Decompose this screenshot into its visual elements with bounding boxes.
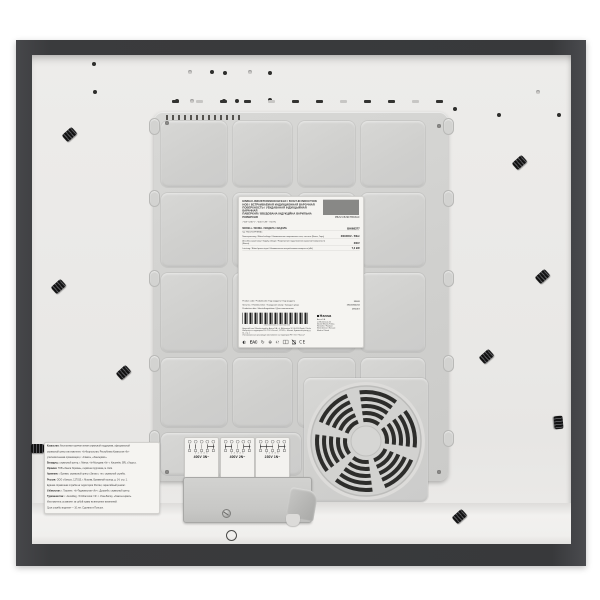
terminal-circle <box>212 440 215 443</box>
spec-label: Anschlussspannung / Supply voltage / Нап… <box>242 240 325 245</box>
terminal-circle <box>206 440 209 443</box>
wiring-label-content: 1 2 3 4 5400V 2N~ <box>222 440 252 459</box>
ce-mark: CE <box>299 340 306 345</box>
product-row-label: Production date / Herstellungsdatum / Да… <box>242 308 293 310</box>
voltage-configuration: 400V 3N~ <box>187 455 217 459</box>
service-info-label: Казахстан: бесплатная горячая линия серв… <box>44 442 160 514</box>
label-title: EINBAU-INDUKTIONSKOCHFELD / BUILT-IN IND… <box>242 200 319 223</box>
top-barcode <box>323 200 359 215</box>
weee-crossed-bin-icon <box>292 340 296 344</box>
voltage-configuration: 400V 2N~ <box>222 455 252 459</box>
brand-name: Hansa <box>320 314 332 318</box>
terminal-screw-square <box>188 449 191 452</box>
terminal-circle <box>200 440 203 443</box>
rating-plate-label: EINBAU-INDUKTIONSKOCHFELD / BUILT-IN IND… <box>238 196 364 348</box>
terminal-circle <box>247 440 250 443</box>
terminal-numbers: 1 2 3 4 5 <box>187 452 217 454</box>
product-row-value: 09/2019 <box>352 308 360 310</box>
terminal-circle <box>235 440 238 443</box>
model-row-label: MODELL / MODEL / МОДЕЛЬ / МАДЭЛЬ <box>242 227 325 229</box>
terminal-numbers: 1 2 3 4 5 <box>258 452 288 454</box>
brand-address-line: Made in Poland <box>317 330 360 332</box>
service-text: Казахстан: бесплатная горячая линия серв… <box>47 444 157 511</box>
product-row-label: Serial no. / Fabriknummer / Заводской но… <box>242 304 299 306</box>
product-row-value: 33609 <box>354 300 360 302</box>
bottom-barcode <box>242 313 309 324</box>
spec-label: Nennspannung / Rated voltage / Номинальн… <box>242 235 325 237</box>
terminal-circle <box>229 440 232 443</box>
product-rows: Product code / Produktcode / Код продукт… <box>242 300 359 311</box>
wiring-label-content: 1 2 3 4 5400V 3N~ <box>187 440 217 459</box>
terminal-bridge <box>278 446 285 447</box>
terminal-screw-square <box>283 449 286 452</box>
terminal-circle <box>277 440 280 443</box>
terminal-screw-square <box>224 449 227 452</box>
terminal-screw-square <box>247 449 250 452</box>
terminal-bridge <box>260 446 273 447</box>
terminal-circle <box>194 440 197 443</box>
terminal-lead <box>189 444 190 448</box>
spec-value: 230V <box>354 242 360 245</box>
terminal-numbers: 1 2 3 4 5 <box>222 452 252 454</box>
terminal-bridge <box>207 446 214 447</box>
product-code-text: PBZxVI529FTB93AC <box>323 216 360 218</box>
product-row-label: Product code / Produktcode / Код продукт… <box>242 300 295 302</box>
specs-line: 7 kW / 230 V~ / 400 V 2N~ / 50 Hz <box>242 221 319 223</box>
spec-value: 230/400V~ 50Hz <box>341 235 360 238</box>
terminal-circle <box>259 440 262 443</box>
terminal-lead <box>201 444 202 448</box>
cert-circle-icon: ⊕ <box>268 340 272 344</box>
title-line: ПОВЕРХНЯ <box>242 216 319 219</box>
recycle-icon: ↻ <box>261 340 265 344</box>
spec-label: Leistung / Rated power input / Номинальн… <box>242 247 325 249</box>
cable-clamp-foot <box>286 514 300 526</box>
terminal-circle <box>271 440 274 443</box>
terminal-circle <box>188 440 191 443</box>
voltage-configuration: 230V 1N~ <box>258 455 288 459</box>
barcode-number: 19200360234 000000000 <box>242 324 311 326</box>
importer-line: Уполномоченная организация изготовителя … <box>242 334 311 336</box>
rostest-icon: ◐ <box>242 340 246 344</box>
manual-book-icon <box>283 340 288 344</box>
product-row: Production date / Herstellungsdatum / Да… <box>242 307 359 311</box>
eac-mark: EAC <box>250 339 257 344</box>
certification-icons-row: ◐EAC↻⊕℮CE <box>242 340 359 345</box>
terminal-circle <box>265 440 268 443</box>
product-photo-induction-hob-underside: 1 2 3 4 5400V 3N~1 2 3 4 5400V 2N~1 2 3 … <box>0 0 600 600</box>
wiring-label-content: 1 2 3 4 5230V 1N~ <box>258 440 288 459</box>
terminal-circle <box>241 440 244 443</box>
model-number: BHI68377 <box>347 227 360 230</box>
spec-rows: Nennspannung / Rated voltage / Номинальн… <box>242 234 359 251</box>
importer-block: Hergestellt von / Manufactured by: Amica… <box>242 328 311 337</box>
brand-block: Hansa Amica S.A.ul. Mickiewicza 5264-510… <box>317 313 360 337</box>
terminal-circle <box>283 440 286 443</box>
terminal-box-screw <box>222 509 231 518</box>
terminal-lead <box>195 444 196 448</box>
terminal-circle <box>223 440 226 443</box>
product-row-value: 19200360234 <box>347 304 360 306</box>
estimated-sign-icon: ℮ <box>275 340 279 344</box>
spec-row: Anschlussspannung / Supply voltage / Нап… <box>242 239 359 246</box>
terminal-bridge <box>224 446 231 447</box>
terminal-lead <box>237 444 238 448</box>
spec-value: 7,2 kW <box>352 247 360 250</box>
terminal-bridge <box>243 446 250 447</box>
terminal-screw-square <box>212 449 215 452</box>
service-text-line: Срок службы изделия — 10 лет. Сделано в … <box>47 505 157 511</box>
terminal-screw-square <box>259 449 262 452</box>
